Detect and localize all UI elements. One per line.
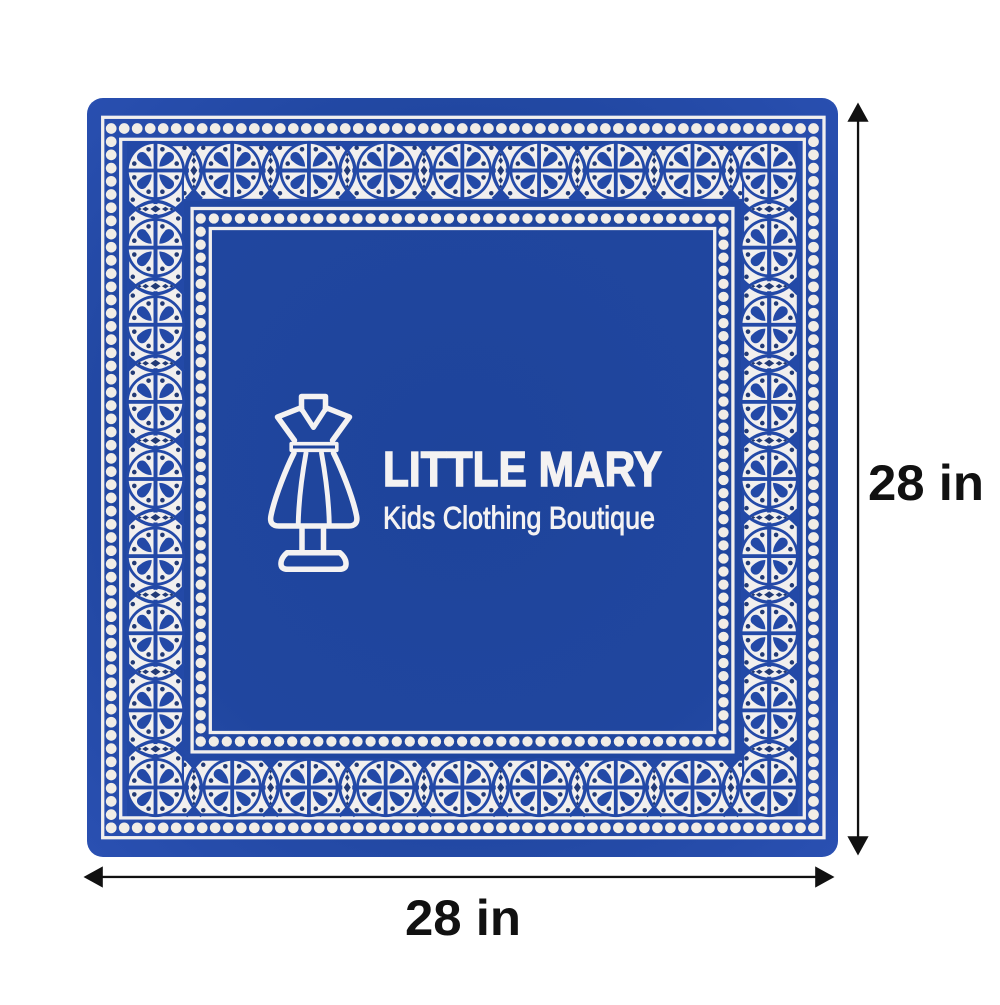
svg-text:28 in: 28 in	[868, 455, 984, 511]
svg-text:Kids Clothing Boutique: Kids Clothing Boutique	[383, 500, 655, 536]
svg-text:LITTLE MARY: LITTLE MARY	[383, 442, 662, 497]
svg-text:28 in: 28 in	[405, 890, 521, 946]
